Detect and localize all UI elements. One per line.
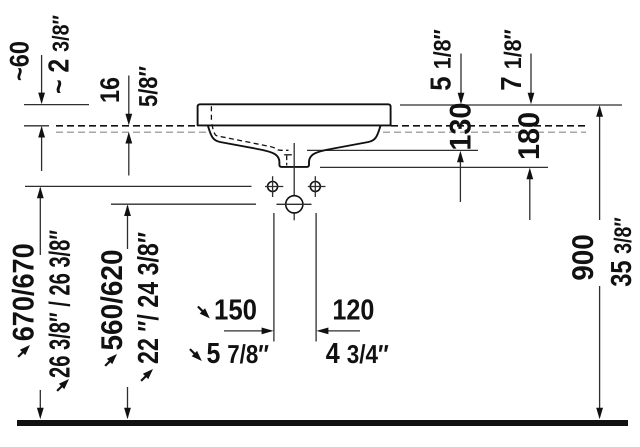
- svg-text:35 3/8″: 35 3/8″: [606, 217, 638, 287]
- svg-text:5 1/8″: 5 1/8″: [426, 29, 458, 91]
- svg-text:900: 900: [567, 234, 600, 280]
- svg-text:4 3/4″: 4 3/4″: [326, 338, 389, 370]
- svg-text:16: 16: [95, 77, 125, 103]
- svg-text:560/620: 560/620: [96, 249, 129, 350]
- svg-text:670/670: 670/670: [7, 243, 40, 341]
- svg-text:130: 130: [445, 103, 478, 151]
- svg-text:150: 150: [214, 295, 257, 327]
- svg-text:180: 180: [513, 112, 546, 160]
- svg-text:5 7/8″: 5 7/8″: [207, 338, 270, 370]
- svg-text:120: 120: [332, 295, 374, 327]
- svg-text:~60: ~60: [5, 41, 35, 81]
- svg-text:22 ″/ 24 3/8″: 22 ″/ 24 3/8″: [133, 232, 165, 364]
- svg-text:7 1/8″: 7 1/8″: [496, 29, 528, 91]
- svg-text:~ 2 3/8″: ~ 2 3/8″: [44, 15, 76, 94]
- svg-text:26 3/8″ / 26 3/8″: 26 3/8″ / 26 3/8″: [44, 230, 76, 378]
- svg-text:5/8″: 5/8″: [133, 66, 163, 107]
